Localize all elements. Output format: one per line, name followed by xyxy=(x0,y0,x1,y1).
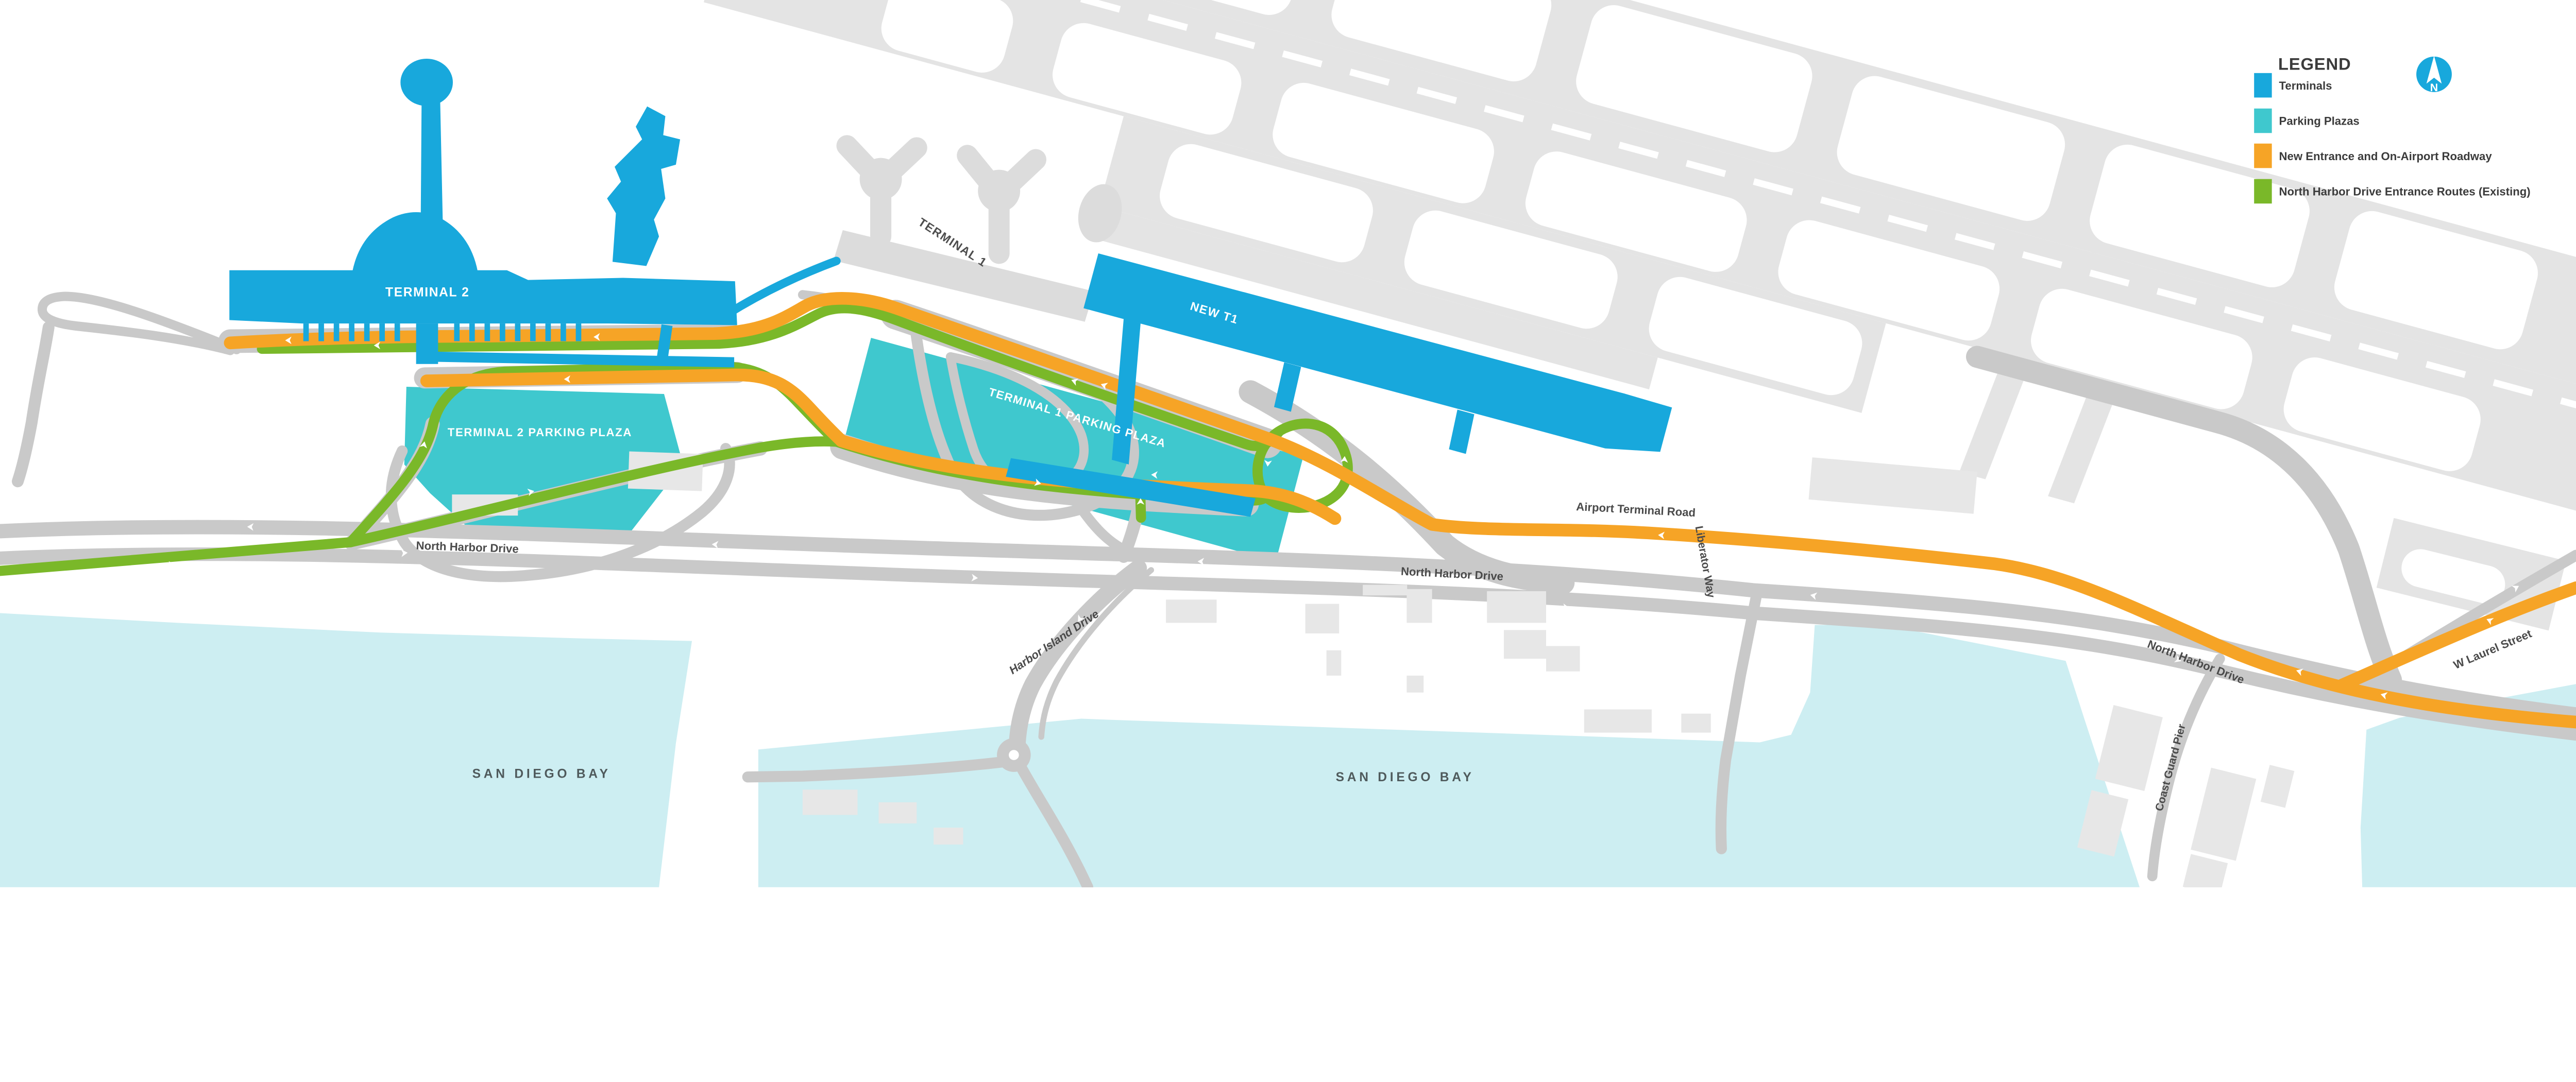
t2-rotunda xyxy=(400,59,453,106)
bay-west xyxy=(0,613,692,887)
terminal-2-label: TERMINAL 2 xyxy=(385,286,469,300)
airport-map-canvas: TERMINAL 2 TERMINAL 1 NEW T1 TERMINAL 2 … xyxy=(0,0,2576,887)
roundabout-center xyxy=(1009,750,1019,760)
north-compass-icon: N xyxy=(2416,56,2452,94)
legend-swatch-new-roadway xyxy=(2254,144,2272,168)
legend-label-parking-plazas: Parking Plazas xyxy=(2279,115,2360,128)
t2-east-concourse xyxy=(607,107,680,266)
compass-north-letter: N xyxy=(2430,81,2438,94)
legend-swatch-parking-plazas xyxy=(2254,109,2272,133)
harbor-island-drive-label: Harbor Island Drive xyxy=(1007,607,1101,677)
existing-terminal-1-building xyxy=(834,146,1128,322)
legend-swatch-terminals xyxy=(2254,73,2272,98)
legend-label-terminals: Terminals xyxy=(2279,79,2332,92)
airport-terminal-road-label: Airport Terminal Road xyxy=(1576,500,1696,519)
san-diego-bay-label-east: SAN DIEGO BAY xyxy=(1336,770,1475,784)
legend-title: LEGEND xyxy=(2278,54,2351,73)
terminal-2-parking-plaza-label: TERMINAL 2 PARKING PLAZA xyxy=(448,426,632,439)
san-diego-bay-label-west: SAN DIEGO BAY xyxy=(472,767,611,781)
t2-main-building xyxy=(229,270,737,325)
bay-middle xyxy=(758,625,2140,887)
legend-label-new-roadway: New Entrance and On-Airport Roadway xyxy=(2279,150,2493,163)
legend-label-existing-routes: North Harbor Drive Entrance Routes (Exis… xyxy=(2279,185,2531,198)
legend-swatch-existing-routes xyxy=(2254,179,2272,204)
